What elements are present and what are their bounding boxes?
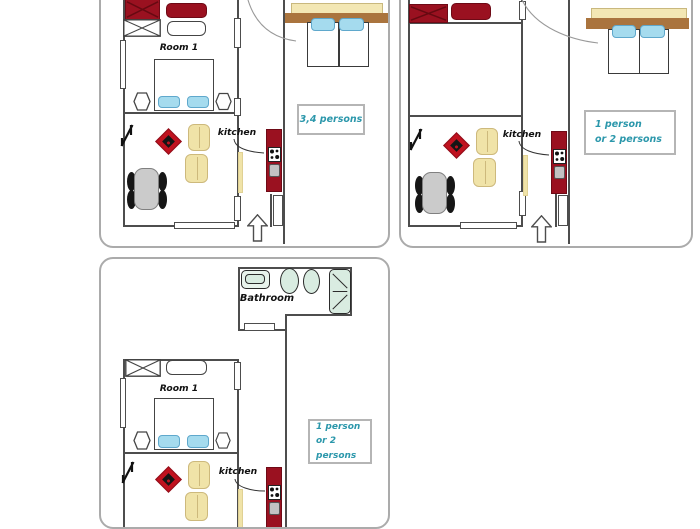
- pillow: [158, 435, 180, 448]
- sofa: [451, 3, 491, 20]
- room1-label: Room 1: [148, 42, 210, 53]
- dining-table: [422, 172, 447, 214]
- rug-table: [155, 128, 182, 155]
- stove-icon: [268, 485, 281, 500]
- stove-icon: [268, 147, 281, 162]
- window: [460, 222, 517, 229]
- floorplan-panel-b: kitchen 1 person or 2 persons: [399, 0, 693, 248]
- wall-bathroom-bottom: [285, 314, 352, 316]
- bidet: [303, 269, 320, 294]
- sofa-cross-icon: [410, 5, 447, 22]
- pillow: [339, 18, 364, 31]
- floorplans-page: { "panels": { "a": { "room1_label": "Roo…: [0, 0, 700, 500]
- wall-bedroom-bottom: [123, 112, 239, 114]
- capacity-text: 3,4 persons: [300, 114, 363, 125]
- wall-vestibule: [270, 194, 272, 227]
- capacity-text: 1 person: [316, 420, 370, 434]
- sofa: [125, 0, 160, 20]
- stove-icon: [553, 149, 566, 164]
- armchair: [185, 154, 208, 183]
- nightstand-hexagon-icon: [133, 92, 151, 111]
- bathroom-label: Bathroom: [237, 293, 297, 304]
- door: [234, 98, 241, 116]
- door: [234, 196, 241, 221]
- chair: [158, 190, 167, 209]
- nightstand-hexagon-icon: [133, 431, 151, 450]
- shower-icon: [329, 269, 351, 314]
- bathtub-basin: [245, 274, 265, 284]
- door: [519, 1, 526, 20]
- nightstand-hexagon-icon: [215, 92, 232, 111]
- bathtub: [241, 270, 270, 289]
- capacity-box: 3,4 persons: [297, 104, 365, 135]
- sofa: [166, 3, 207, 18]
- toilet: [280, 268, 299, 294]
- wall-vestibule: [555, 194, 557, 227]
- armchair: [188, 461, 210, 489]
- counter: [523, 155, 528, 196]
- wall-apartment-right: [283, 0, 285, 244]
- armchair: [188, 124, 210, 151]
- bench: [167, 21, 206, 36]
- pillow: [612, 25, 636, 38]
- nightstand-hexagon-icon: [215, 431, 231, 450]
- pillow: [187, 96, 209, 108]
- entrance-door: [273, 195, 283, 226]
- armchair: [473, 158, 496, 187]
- door-swing-icon: [120, 461, 136, 484]
- bathroom-door: [244, 323, 275, 331]
- rug-table: [155, 466, 182, 493]
- bed-frame: [586, 18, 689, 29]
- pillow: [158, 96, 180, 108]
- wall-living-top: [408, 115, 523, 117]
- pillow: [187, 435, 209, 448]
- sink: [554, 166, 565, 179]
- capacity-text: or 2 persons: [595, 133, 674, 147]
- wardrobe-icon: [123, 19, 161, 37]
- pillow: [640, 25, 665, 38]
- counter: [238, 152, 243, 193]
- wall-left: [408, 0, 410, 227]
- kitchen-label: kitchen: [215, 466, 261, 477]
- sink: [269, 164, 280, 177]
- floorplan-panel-c: Bathroom Room 1 kitchen 1 person or 2 pe…: [99, 257, 390, 529]
- wall-corridor-right: [285, 314, 287, 529]
- pillow: [311, 18, 335, 31]
- capacity-box: 1 person or 2 persons: [308, 419, 372, 464]
- bench: [166, 360, 207, 375]
- rug-table: [443, 132, 470, 159]
- entrance-door: [558, 195, 568, 226]
- capacity-text: 1 person: [595, 118, 674, 132]
- floorplan-panel-a: Room 1 kitchen 3,4 persons: [99, 0, 390, 248]
- door-swing-icon: [119, 124, 135, 147]
- dining-table: [134, 168, 159, 210]
- armchair: [476, 128, 498, 155]
- window: [120, 378, 126, 428]
- wall-apartment-right: [568, 0, 570, 244]
- wardrobe-icon: [125, 359, 161, 377]
- chair: [446, 176, 455, 195]
- window: [120, 40, 126, 89]
- door: [234, 362, 241, 390]
- counter: [238, 489, 243, 529]
- kitchen-label: kitchen: [499, 129, 545, 140]
- capacity-box: 1 person or 2 persons: [584, 110, 676, 155]
- entrance-arrow-icon: [247, 214, 268, 242]
- armchair: [185, 492, 208, 521]
- sofa: [409, 4, 448, 23]
- sink: [269, 502, 280, 515]
- chair: [446, 194, 455, 213]
- window: [174, 222, 235, 229]
- capacity-text: or 2 persons: [316, 434, 370, 463]
- kitchen-label: kitchen: [214, 127, 260, 138]
- door-swing-icon: [408, 128, 424, 151]
- wall-bedroom-bottom: [123, 452, 239, 454]
- sofa-cross-icon: [126, 0, 159, 19]
- entrance-arrow-icon: [531, 215, 552, 243]
- room1-label: Room 1: [148, 383, 210, 394]
- chair: [158, 172, 167, 191]
- door: [234, 18, 241, 48]
